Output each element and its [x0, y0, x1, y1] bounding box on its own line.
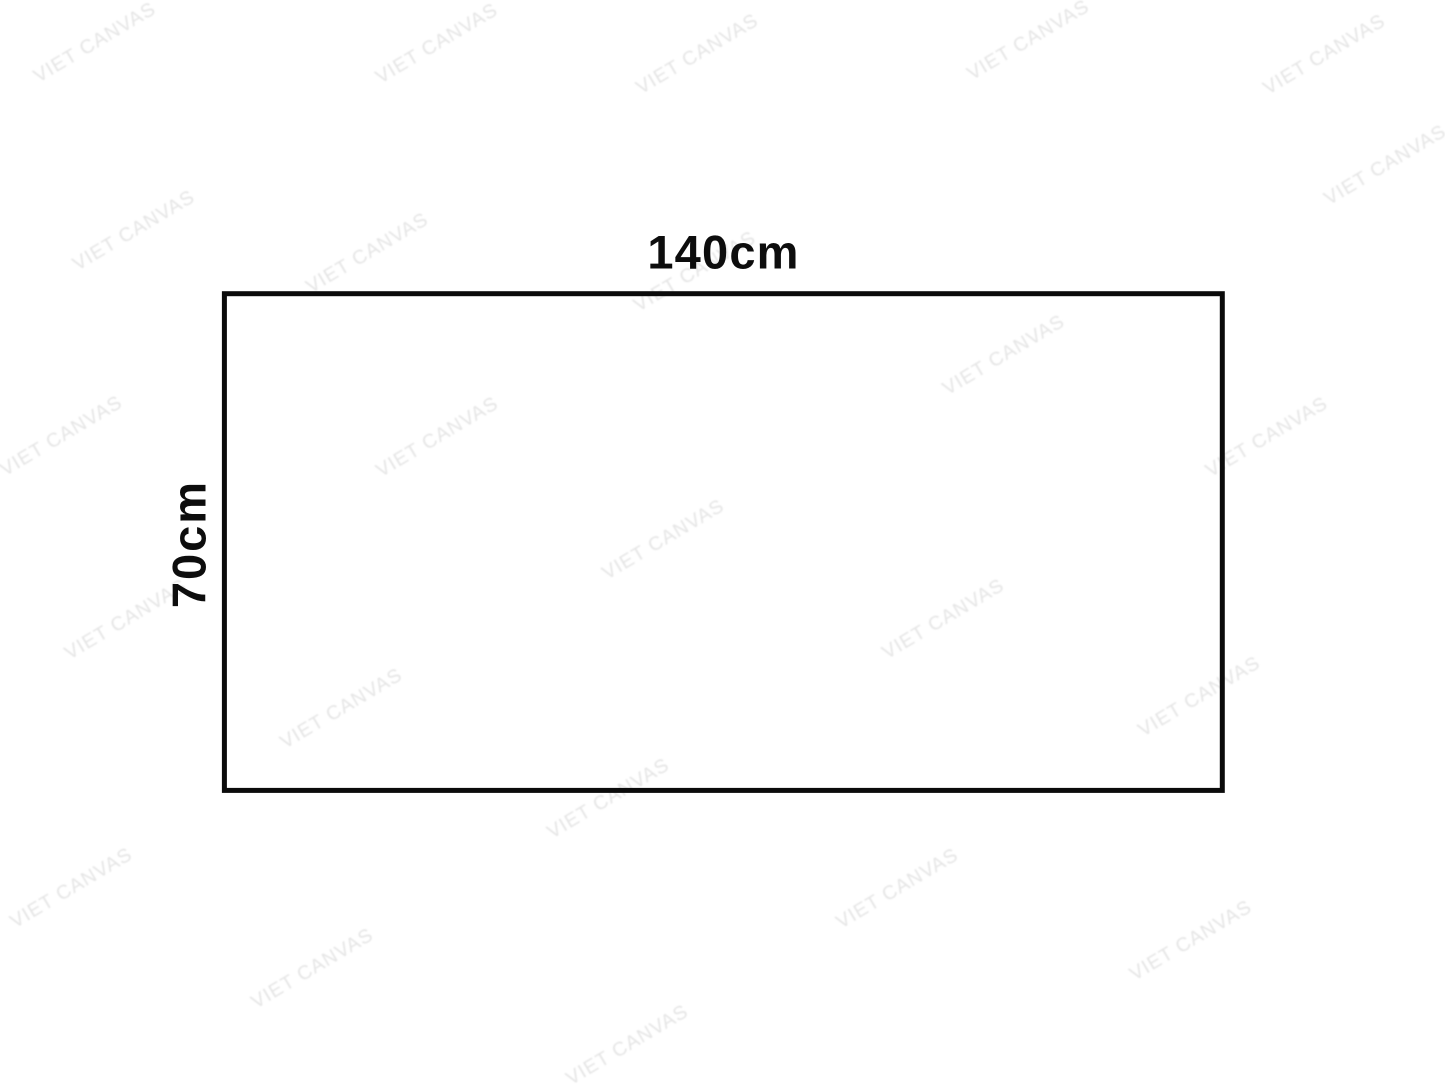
svg-text:70cm: 70cm	[162, 480, 215, 608]
svg-text:140cm: 140cm	[647, 226, 799, 279]
